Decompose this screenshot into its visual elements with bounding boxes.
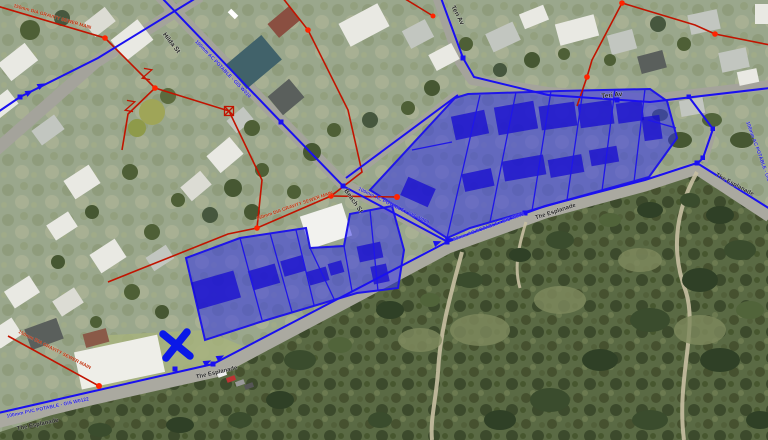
sewer-node[interactable]: [254, 225, 260, 231]
water-node[interactable]: [18, 95, 23, 100]
sewer-node[interactable]: [431, 14, 436, 19]
water-node[interactable]: [173, 367, 178, 372]
sewer-node[interactable]: [712, 31, 718, 37]
sewer-node[interactable]: [96, 383, 102, 389]
water-node[interactable]: [701, 156, 706, 161]
sewer-node[interactable]: [305, 27, 311, 33]
sewer-node[interactable]: [152, 85, 158, 91]
gis-map[interactable]: Hilda St Teri Av Teri Av Beach St The Es…: [0, 0, 768, 440]
water-node[interactable]: [711, 127, 716, 132]
map-canvas[interactable]: Hilda St Teri Av Teri Av Beach St The Es…: [0, 0, 768, 440]
water-node[interactable]: [279, 120, 284, 125]
sewer-node[interactable]: [619, 0, 625, 6]
sewer-node[interactable]: [584, 74, 590, 80]
water-node[interactable]: [461, 56, 466, 61]
water-node[interactable]: [687, 95, 692, 100]
water-node[interactable]: [695, 161, 700, 166]
water-node[interactable]: [211, 362, 216, 367]
sewer-node[interactable]: [394, 194, 400, 200]
sewer-node[interactable]: [102, 35, 108, 41]
water-node[interactable]: [341, 184, 346, 189]
